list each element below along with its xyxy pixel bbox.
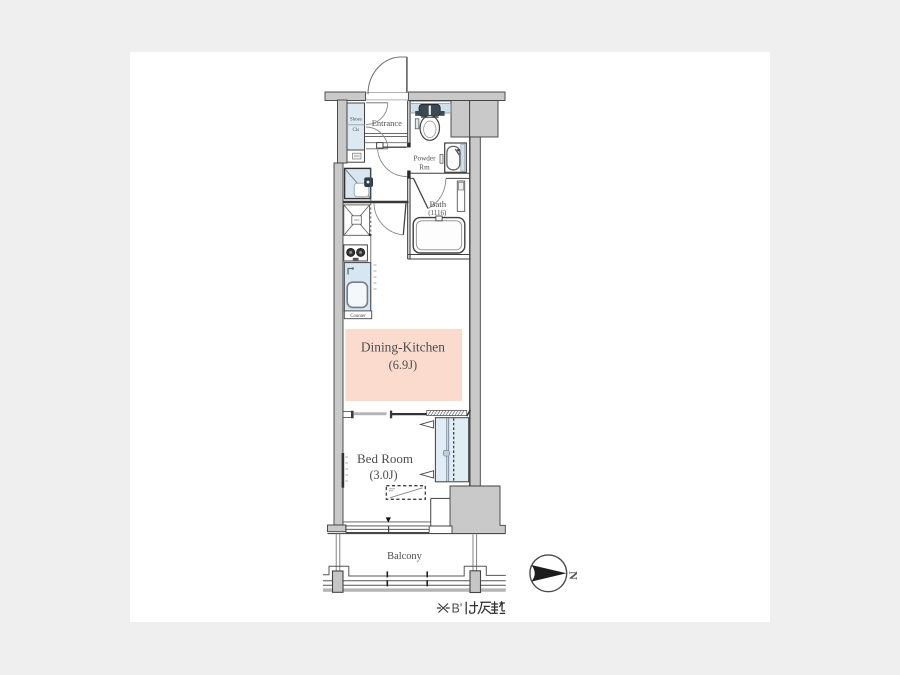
svg-text:(1116): (1116) — [428, 209, 447, 217]
svg-text:Powder: Powder — [414, 155, 437, 163]
svg-text:(3.0J): (3.0J) — [369, 468, 397, 482]
svg-text:Shoes: Shoes — [350, 118, 362, 123]
svg-text:Bed Room: Bed Room — [357, 451, 413, 466]
svg-text:Rm: Rm — [419, 164, 430, 172]
svg-text:Entrance: Entrance — [372, 118, 402, 128]
svg-text:Dining-Kitchen: Dining-Kitchen — [361, 340, 445, 355]
svg-text:(6.9J): (6.9J) — [389, 358, 418, 372]
svg-text:B': B' — [452, 602, 463, 616]
svg-text:Bath: Bath — [429, 199, 446, 209]
svg-text:N: N — [567, 571, 581, 580]
svg-text:Cls: Cls — [352, 128, 359, 133]
svg-text:Counter: Counter — [350, 314, 366, 319]
svg-text:Balcony: Balcony — [387, 551, 422, 562]
